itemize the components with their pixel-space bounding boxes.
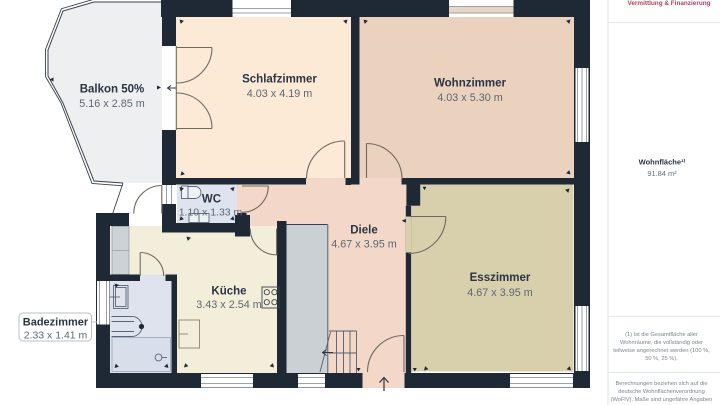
svg-text:3.43 x 2.54 m: 3.43 x 2.54 m <box>196 299 261 311</box>
svg-text:Berechnungen beziehen sich auf: Berechnungen beziehen sich auf die <box>615 381 707 387</box>
svg-text:5.16 x 2.85 m: 5.16 x 2.85 m <box>79 98 144 110</box>
svg-text:WC: WC <box>202 194 221 206</box>
svg-text:deutsche Wohnflächenverordnung: deutsche Wohnflächenverordnung <box>618 389 705 395</box>
svg-text:1.10 x 1.33 m: 1.10 x 1.33 m <box>179 207 243 219</box>
svg-text:Wohnfläche¹⁾: Wohnfläche¹⁾ <box>639 158 686 167</box>
svg-text:Diele: Diele <box>350 225 378 237</box>
svg-text:Wohnräume, die vollständig ode: Wohnräume, die vollständig oder <box>620 340 703 346</box>
svg-text:4.67 x 3.95 m: 4.67 x 3.95 m <box>467 287 532 299</box>
svg-text:Esszimmer: Esszimmer <box>470 272 531 284</box>
svg-text:Wohnzimmer: Wohnzimmer <box>434 78 507 90</box>
svg-text:2.33 x 1.41 m: 2.33 x 1.41 m <box>24 330 88 342</box>
svg-text:(WoFlV). Maße sind ungefähre A: (WoFlV). Maße sind ungefähre Angaben <box>611 397 713 403</box>
svg-text:Schlafzimmer: Schlafzimmer <box>242 74 317 86</box>
svg-text:Küche: Küche <box>211 286 246 298</box>
svg-text:Balkon 50%: Balkon 50% <box>80 84 145 96</box>
svg-text:4.03 x 5.30 m: 4.03 x 5.30 m <box>437 92 502 104</box>
svg-text:50 %, 25 %).: 50 %, 25 %). <box>645 356 678 362</box>
svg-text:4.03 x 4.19 m: 4.03 x 4.19 m <box>247 88 312 100</box>
svg-text:teilweise angerechnet werden (: teilweise angerechnet werden (100 %, <box>613 348 710 354</box>
svg-text:Vermittlung & Finanzierung: Vermittlung & Finanzierung <box>627 0 710 7</box>
svg-text:Badezimmer: Badezimmer <box>23 317 89 329</box>
svg-text:(1) Ist die Gesamtfläche aller: (1) Ist die Gesamtfläche aller <box>625 332 698 338</box>
svg-text:4.67 x 3.95 m: 4.67 x 3.95 m <box>331 239 396 251</box>
svg-text:91.84 m²: 91.84 m² <box>647 169 677 178</box>
